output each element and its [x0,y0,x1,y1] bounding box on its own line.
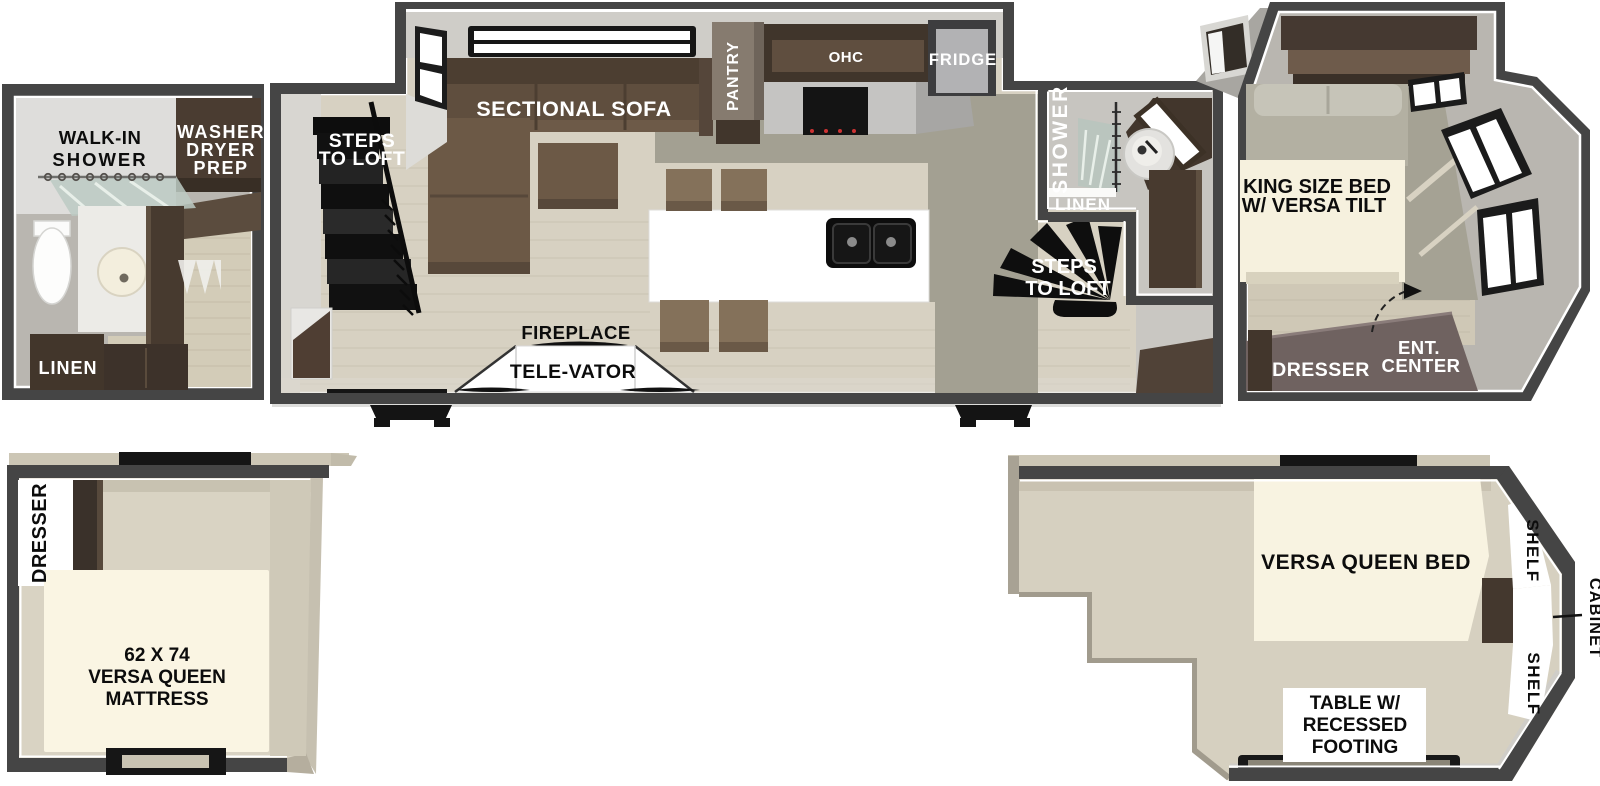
svg-text:LINEN: LINEN [1055,195,1111,214]
svg-text:VERSA QUEEN: VERSA QUEEN [88,667,226,688]
svg-text:DRESSER: DRESSER [1272,359,1370,381]
svg-text:DRYER: DRYER [186,140,256,160]
svg-text:SHOWER: SHOWER [1049,84,1072,194]
svg-text:CABINET: CABINET [1586,578,1600,658]
svg-text:SECTIONAL SOFA: SECTIONAL SOFA [476,97,671,121]
svg-text:FRIDGE: FRIDGE [929,51,997,69]
svg-text:WASHER: WASHER [177,122,265,142]
svg-text:DRESSER: DRESSER [29,483,51,583]
svg-text:LINEN: LINEN [39,358,98,378]
svg-text:STEPS: STEPS [1031,256,1097,278]
svg-text:TABLE W/: TABLE W/ [1310,693,1401,714]
svg-text:RECESSED: RECESSED [1303,715,1408,736]
svg-text:SHELF: SHELF [1524,652,1543,715]
svg-text:OHC: OHC [829,49,864,66]
svg-text:FOOTING: FOOTING [1312,737,1399,758]
svg-text:TO LOFT: TO LOFT [319,148,406,170]
svg-text:62 X 74: 62 X 74 [124,645,190,666]
svg-text:TO LOFT: TO LOFT [1025,278,1110,300]
svg-text:PREP: PREP [193,158,248,178]
svg-text:TELE-VATOR: TELE-VATOR [510,361,636,383]
svg-text:MATTRESS: MATTRESS [105,689,208,710]
svg-text:CENTER: CENTER [1381,355,1460,376]
svg-text:FIREPLACE: FIREPLACE [521,322,630,343]
svg-text:SHOWER: SHOWER [52,149,147,170]
svg-text:WALK-IN: WALK-IN [59,127,142,148]
svg-text:SHELF: SHELF [1523,519,1542,582]
svg-text:VERSA QUEEN BED: VERSA QUEEN BED [1261,551,1471,574]
svg-text:PANTRY: PANTRY [725,41,742,111]
svg-text:W/ VERSA TILT: W/ VERSA TILT [1242,195,1386,217]
